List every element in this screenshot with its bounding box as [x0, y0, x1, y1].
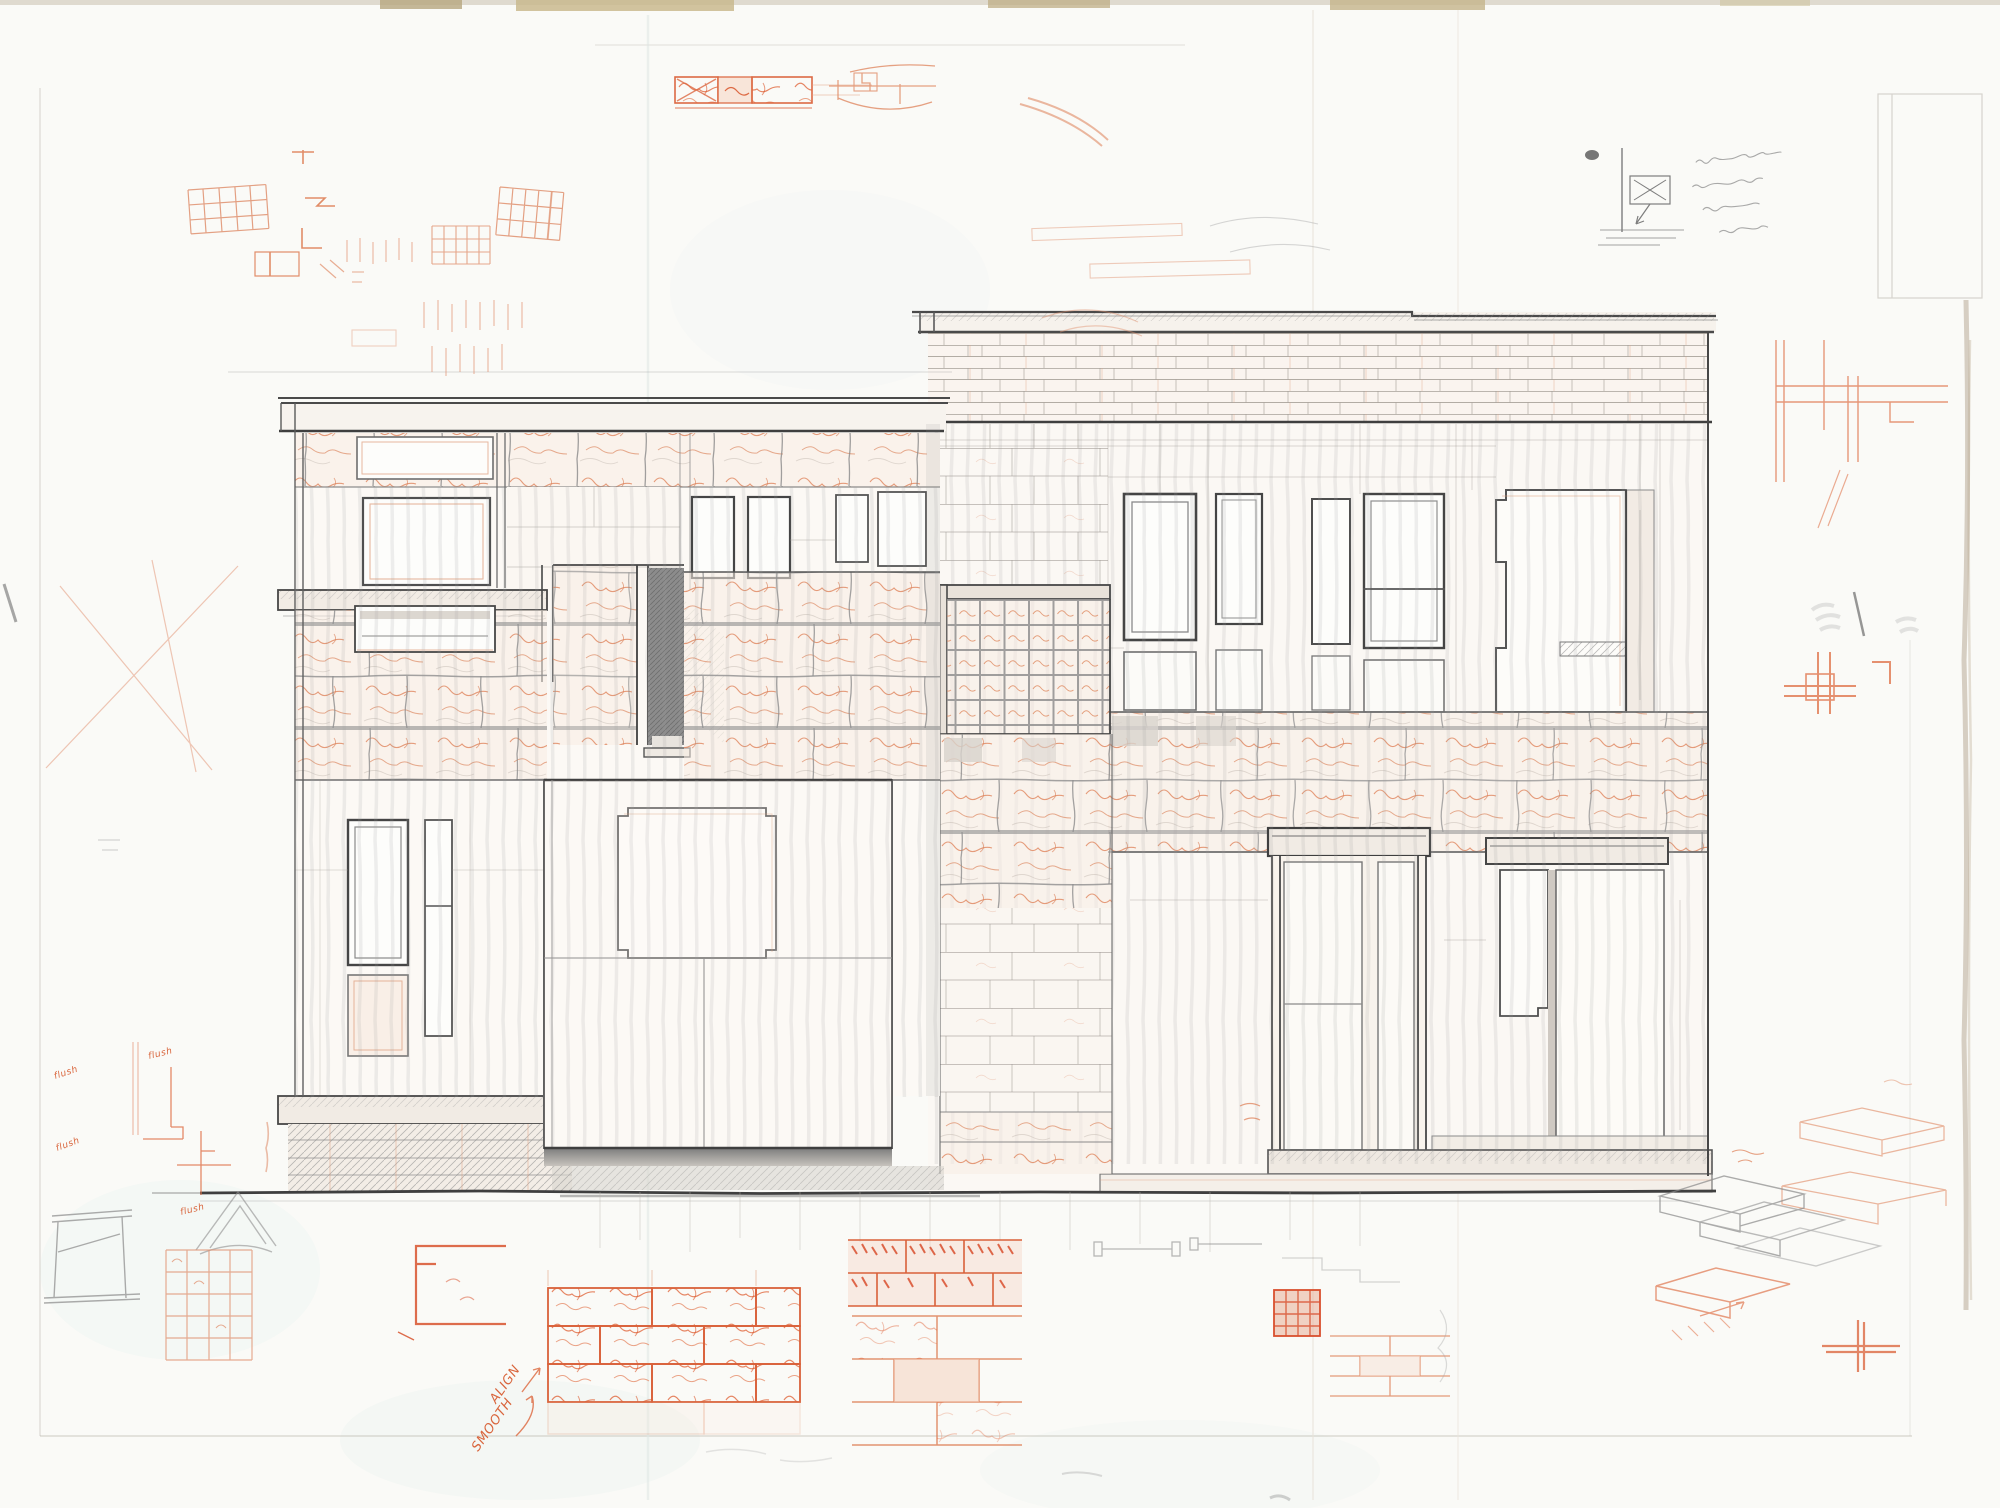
dense-red-square [1274, 1290, 1320, 1336]
left-block-base [288, 1124, 572, 1192]
red-band-study [848, 1240, 1022, 1306]
paper-sheet: flush flush flush flush [0, 0, 2000, 1508]
elevation-drawing: flush flush flush flush [0, 0, 2000, 1508]
left-block-rusticated-band [295, 433, 940, 487]
middle-strip [933, 585, 1112, 1174]
big-stone-study [548, 1270, 800, 1434]
central-panel-mass [544, 780, 944, 1190]
